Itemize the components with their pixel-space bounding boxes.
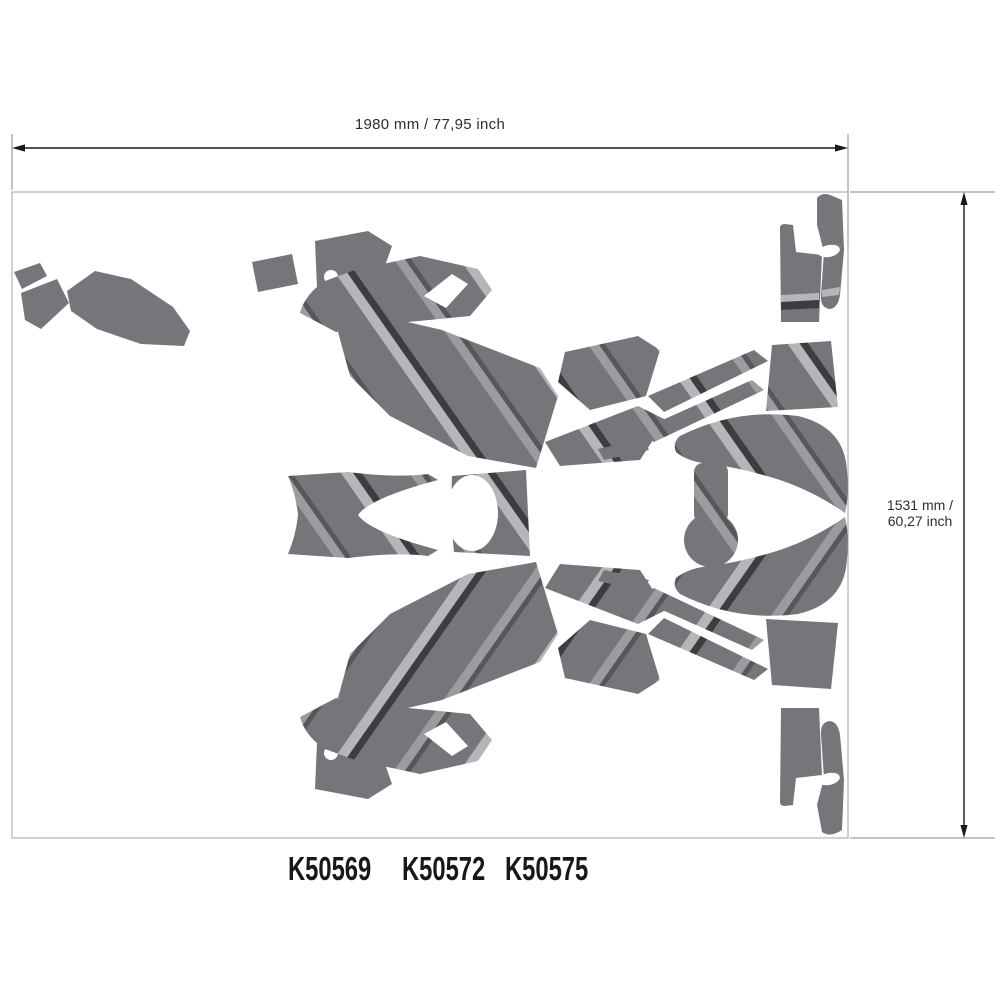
part-number: K50575: [505, 850, 588, 888]
eye-cutout: [446, 475, 498, 551]
decal-kit-diagram: 1980 mm / 77,95 inch 1531 mm / 60,27 inc…: [0, 0, 1000, 1000]
part-number: K50569: [288, 850, 371, 888]
arrow-up-icon: [960, 192, 967, 205]
height-dimension-label-line2: 60,27 inch: [876, 513, 964, 529]
arrow-right-icon: [835, 144, 848, 151]
decal-sheet-graphic: [0, 0, 1000, 1000]
height-dimension-label-line1: 1531 mm /: [876, 497, 964, 513]
arrow-down-icon: [960, 825, 967, 838]
width-dimension-label: 1980 mm / 77,95 inch: [12, 116, 848, 133]
part-number: K50572: [402, 850, 485, 888]
trapezoid-decal: [766, 619, 838, 689]
trapezoid-decal: [766, 341, 838, 411]
arrow-left-icon: [12, 144, 25, 151]
height-dimension-label: 1531 mm / 60,27 inch: [876, 497, 964, 529]
